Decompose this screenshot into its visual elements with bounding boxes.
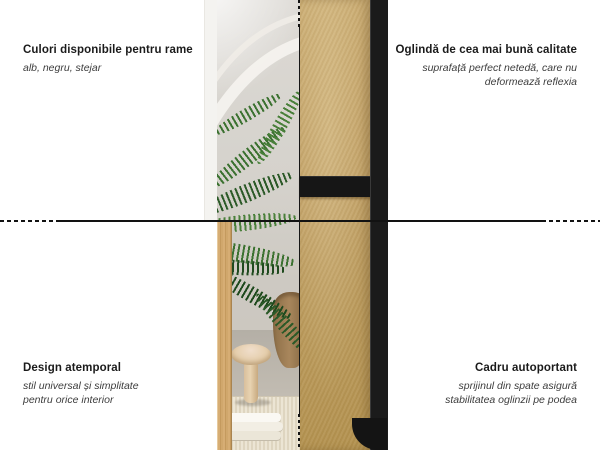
vertical-divider-dotted-bottom — [298, 414, 300, 450]
reflection-towel-stack — [227, 413, 281, 422]
annotation-subtitle-line: suprafață perfect netedă, care nu — [347, 61, 577, 75]
annotation-subtitle-line: stabilitatea oglinzii pe podea — [347, 393, 577, 407]
reflection-towel-stack — [225, 422, 283, 431]
annotation-timeless-design: Design atemporal stil universal și simpl… — [23, 362, 253, 407]
annotation-frame-colors: Culori disponibile pentru rame alb, negr… — [23, 44, 253, 75]
vertical-divider-dotted-top — [298, 0, 300, 27]
annotation-subtitle-line: deformează reflexia — [347, 75, 577, 89]
annotation-title: Culori disponibile pentru rame — [23, 44, 253, 56]
infographic-canvas: Culori disponibile pentru rame alb, negr… — [0, 0, 600, 450]
mirror-frame-oak-edge — [217, 221, 232, 450]
reflection-towel-stack — [229, 431, 281, 440]
annotation-title: Oglindă de cea mai bună calitate — [347, 44, 577, 56]
annotation-subtitle-line: pentru orice interior — [23, 393, 253, 407]
annotation-self-supporting-frame: Cadru autoportant sprijinul din spate as… — [347, 362, 577, 407]
horizontal-divider-dotted-left — [0, 220, 57, 222]
annotation-title: Design atemporal — [23, 362, 253, 374]
annotation-subtitle: suprafață perfect netedă, care nu deform… — [347, 61, 577, 89]
annotation-subtitle: sprijinul din spate asigură stabilitatea… — [347, 379, 577, 407]
annotation-title: Cadru autoportant — [347, 362, 577, 374]
annotation-subtitle: alb, negru, stejar — [23, 61, 253, 75]
horizontal-divider-dotted-right — [542, 220, 600, 222]
annotation-subtitle-line: sprijinul din spate asigură — [347, 379, 577, 393]
annotation-mirror-quality: Oglindă de cea mai bună calitate suprafa… — [347, 44, 577, 89]
vertical-split-line — [299, 27, 300, 414]
annotation-subtitle: stil universal și simplitate pentru oric… — [23, 379, 253, 407]
annotation-subtitle-line: stil universal și simplitate — [23, 379, 253, 393]
